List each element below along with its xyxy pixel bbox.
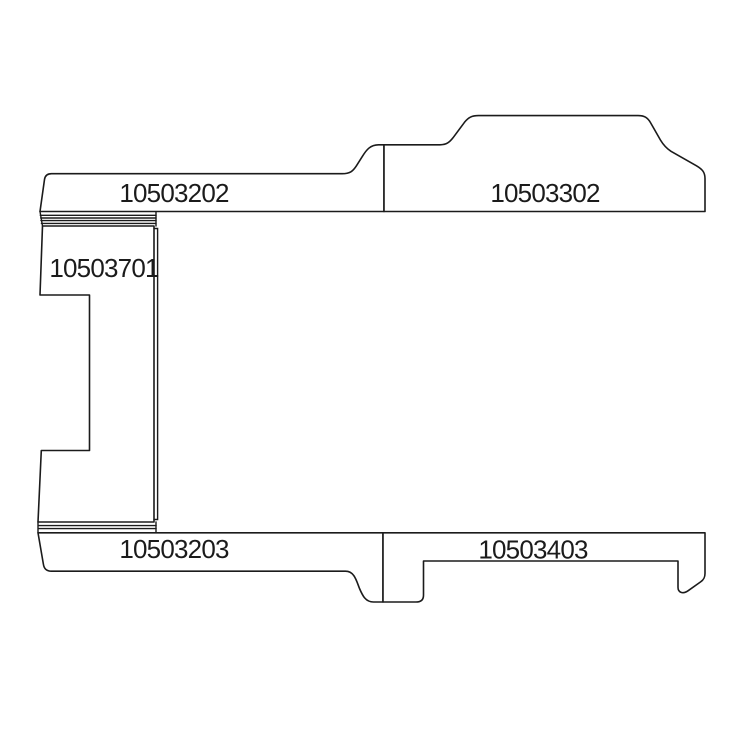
part-10503302-label: 10503302 [490, 178, 600, 208]
parts-diagram-canvas: 10503202 10503302 [0, 0, 750, 750]
part-10503203-label: 10503203 [119, 534, 229, 564]
part-10503203[interactable]: 10503203 [38, 533, 383, 602]
part-10503302[interactable]: 10503302 [384, 116, 705, 212]
part-10503202-label: 10503202 [119, 178, 229, 208]
part-10503202[interactable]: 10503202 [40, 145, 384, 212]
laminate-edge-lines-bottom [38, 522, 156, 533]
laminate-edge-lines-top [40, 212, 156, 227]
part-10503701[interactable]: 10503701 [38, 212, 159, 533]
part-10503403[interactable]: 10503403 [383, 533, 705, 602]
part-10503701-label: 10503701 [49, 253, 159, 283]
parts-line-diagram: 10503202 10503302 [0, 0, 750, 750]
part-10503403-label: 10503403 [478, 535, 588, 565]
